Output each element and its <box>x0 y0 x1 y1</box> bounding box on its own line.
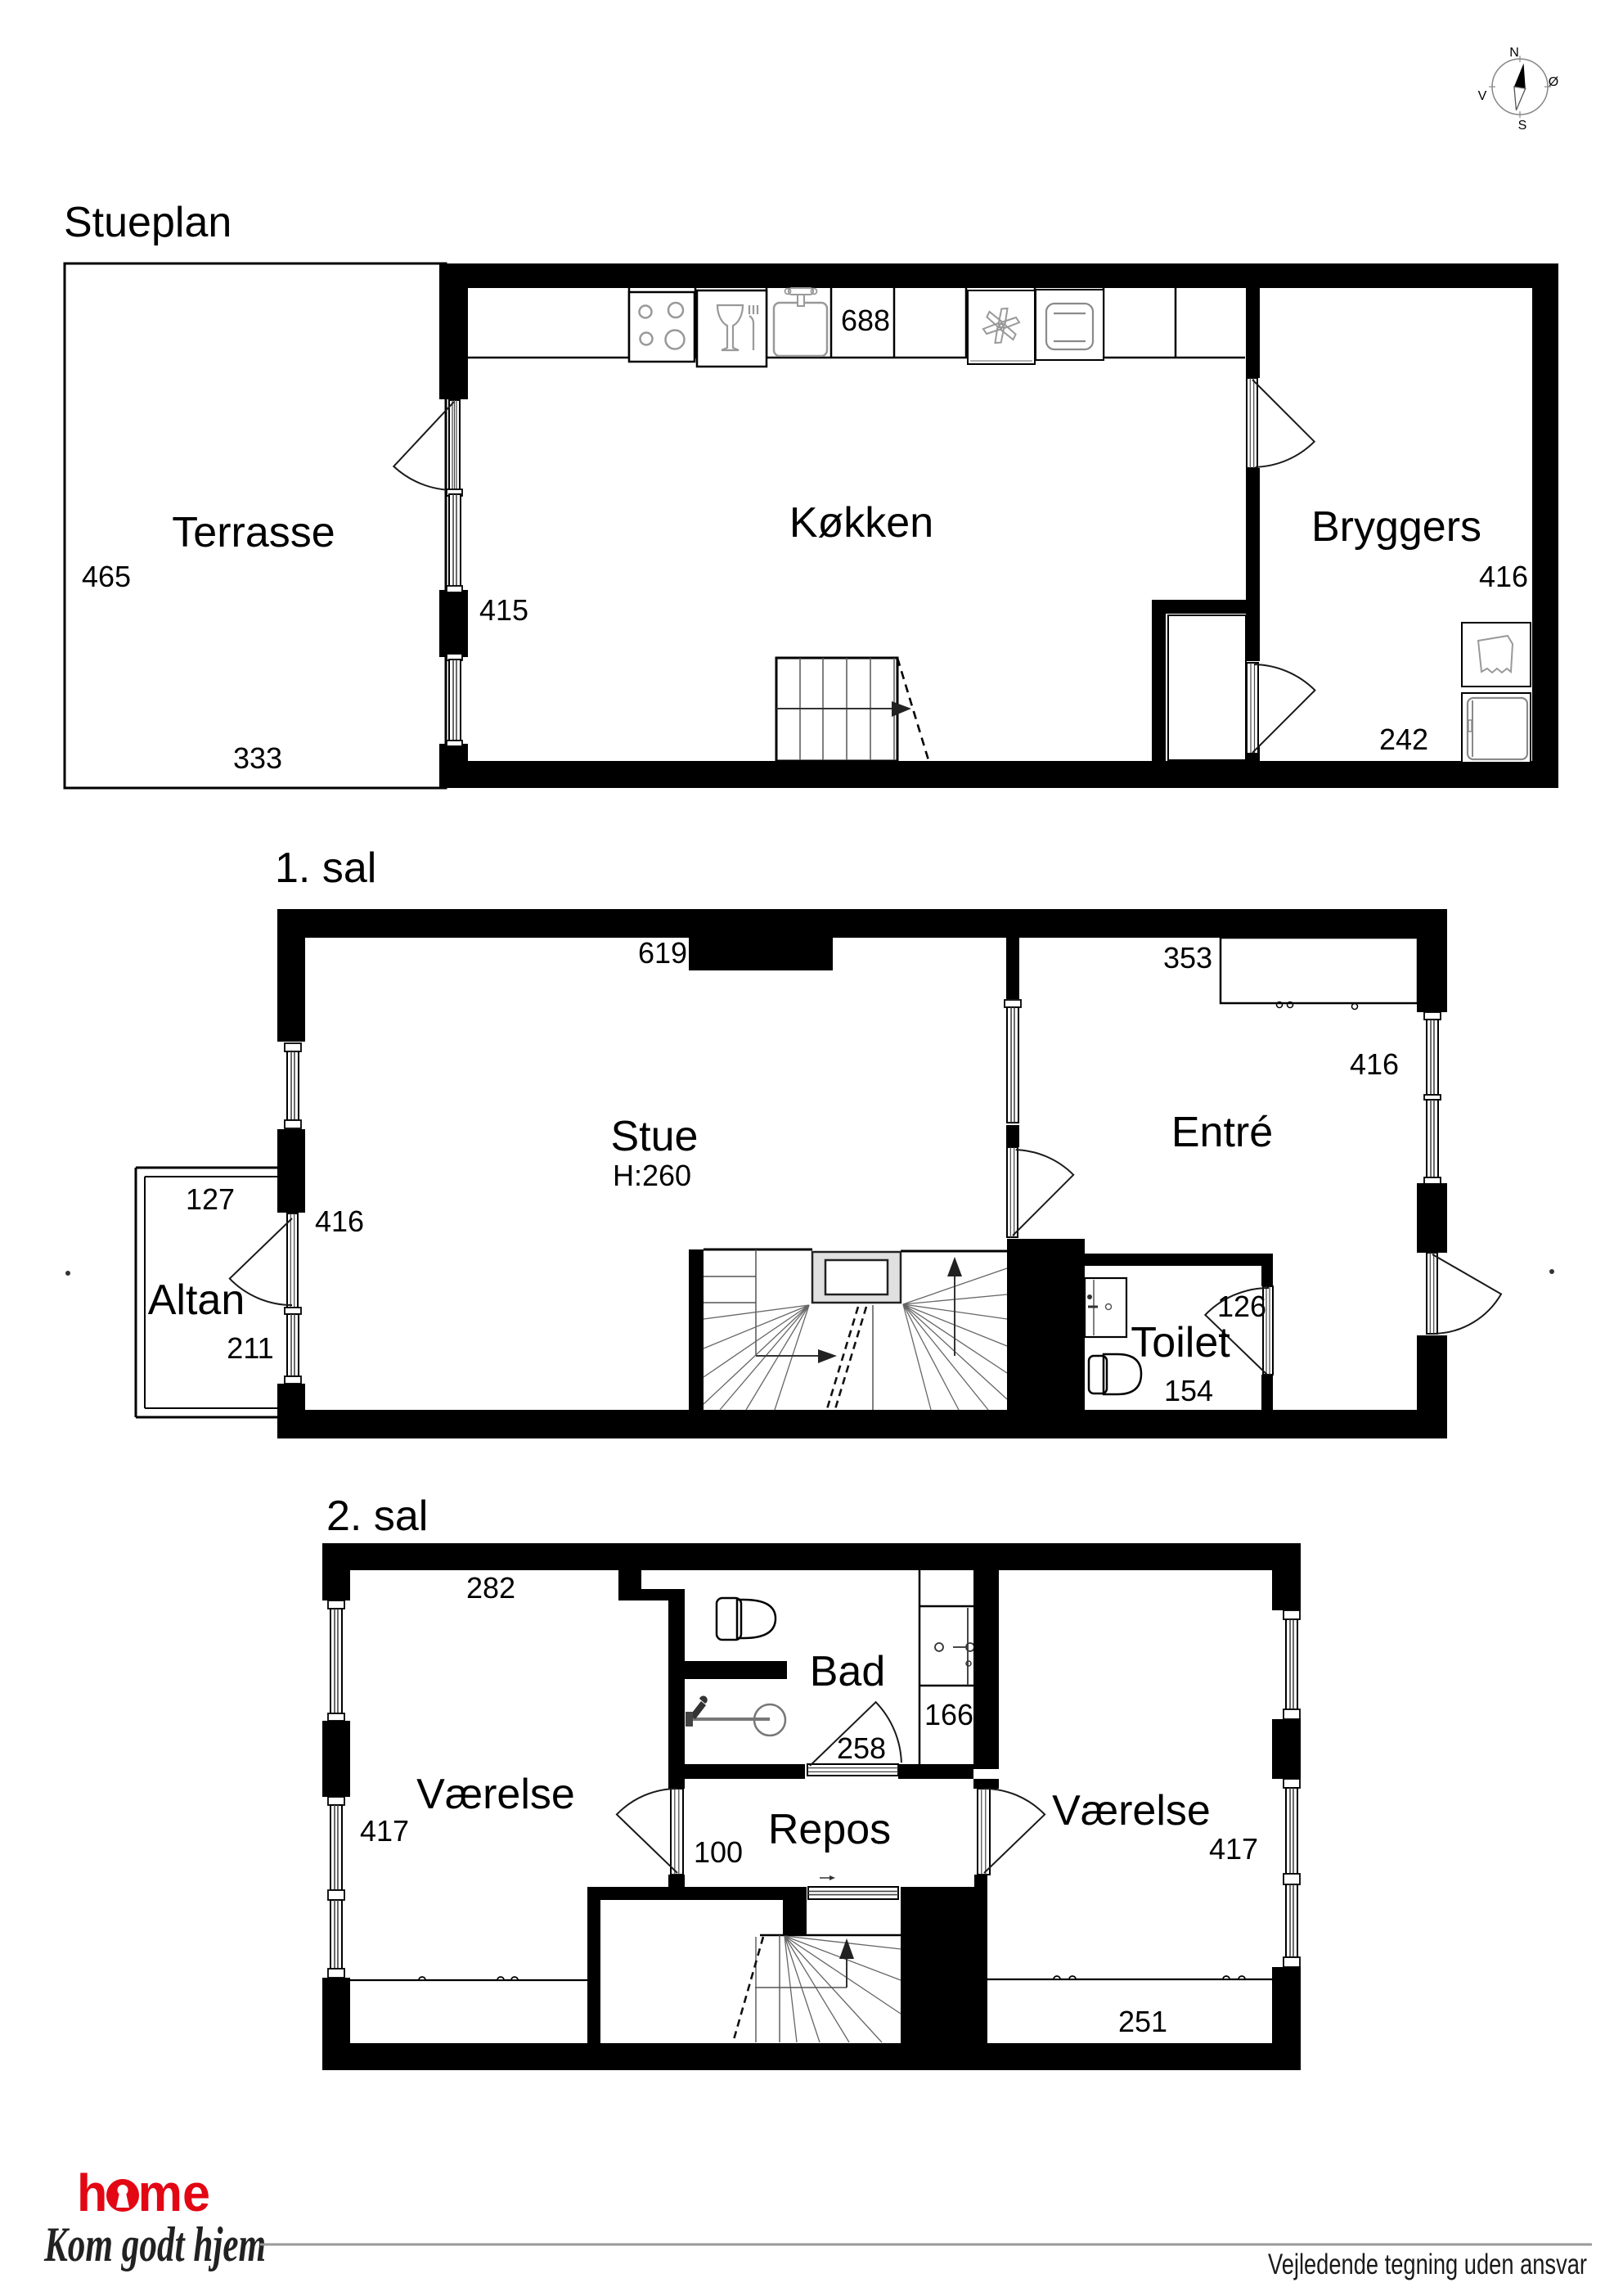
svg-text:251: 251 <box>1118 2005 1167 2038</box>
svg-text:154: 154 <box>1164 1374 1213 1407</box>
svg-text:416: 416 <box>315 1204 364 1238</box>
svg-text:1. sal: 1. sal <box>275 844 376 892</box>
svg-text:166: 166 <box>924 1698 973 1731</box>
svg-text:417: 417 <box>360 1814 409 1848</box>
svg-text:417: 417 <box>1209 1832 1258 1866</box>
svg-text:416: 416 <box>1479 560 1528 593</box>
svg-text:465: 465 <box>82 560 131 593</box>
svg-text:Repos: Repos <box>768 1806 891 1853</box>
svg-text:416: 416 <box>1350 1047 1399 1081</box>
svg-text:S: S <box>1518 119 1527 133</box>
svg-text:home: home <box>77 2163 210 2222</box>
svg-text:Køkken: Køkken <box>789 499 933 547</box>
svg-text:V: V <box>1478 89 1487 103</box>
svg-text:Værelse: Værelse <box>416 1771 575 1818</box>
svg-text:Toilet: Toilet <box>1131 1319 1230 1366</box>
svg-text:Værelse: Værelse <box>1052 1787 1211 1835</box>
svg-text:333: 333 <box>233 741 282 775</box>
svg-text:Bad: Bad <box>810 1648 886 1695</box>
svg-text:100: 100 <box>694 1835 743 1869</box>
svg-text:688: 688 <box>841 304 890 337</box>
svg-text:Ø: Ø <box>1549 75 1558 89</box>
svg-text:211: 211 <box>227 1331 273 1365</box>
svg-text:Kom godt hjem: Kom godt hjem <box>43 2217 266 2272</box>
svg-text:2. sal: 2. sal <box>326 1492 428 1540</box>
svg-text:Stue: Stue <box>611 1113 699 1160</box>
svg-text:Bryggers: Bryggers <box>1311 503 1481 551</box>
svg-text:Vejledende tegning uden ansvar: Vejledende tegning uden ansvar <box>1268 2249 1587 2280</box>
svg-text:415: 415 <box>479 593 528 627</box>
svg-text:Terrasse: Terrasse <box>172 509 335 556</box>
svg-text:H:260: H:260 <box>613 1159 691 1192</box>
svg-text:N: N <box>1509 46 1519 60</box>
svg-text:127: 127 <box>186 1182 235 1216</box>
svg-text:Altan: Altan <box>148 1276 245 1324</box>
svg-text:242: 242 <box>1379 723 1428 756</box>
svg-text:282: 282 <box>466 1571 515 1605</box>
svg-text:258: 258 <box>837 1731 886 1765</box>
svg-text:353: 353 <box>1163 941 1212 975</box>
svg-text:Entré: Entré <box>1171 1109 1273 1156</box>
svg-text:126: 126 <box>1217 1290 1266 1323</box>
svg-text:619: 619 <box>638 936 687 970</box>
svg-text:Stueplan: Stueplan <box>64 199 232 246</box>
